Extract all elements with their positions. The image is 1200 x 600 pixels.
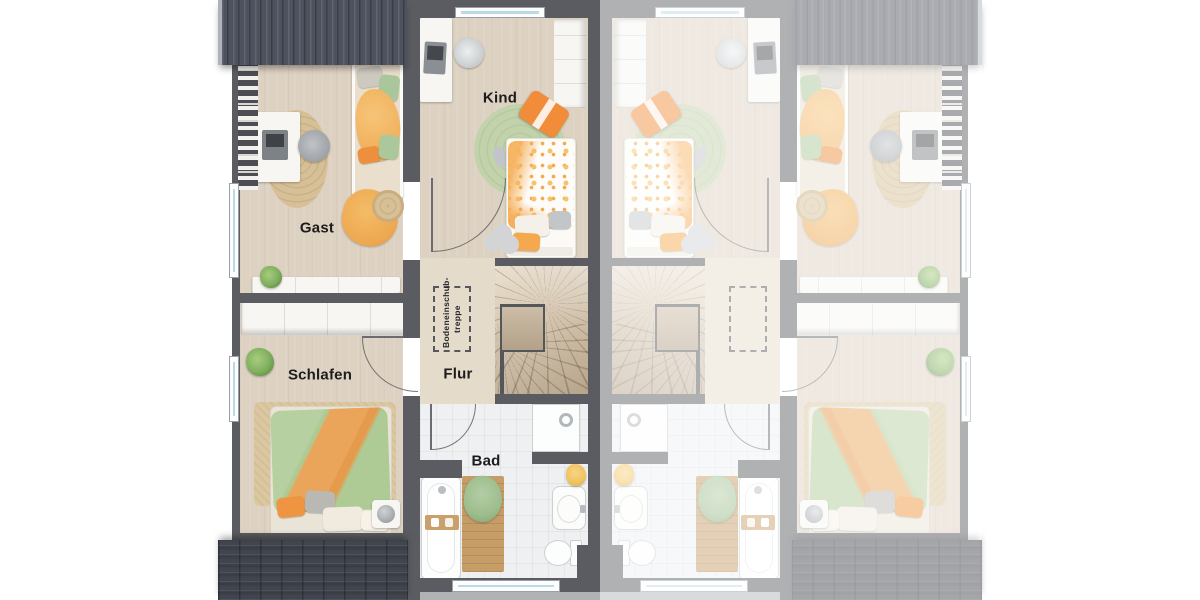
pillow [357, 145, 381, 165]
pillow [378, 134, 400, 159]
faucet-icon [580, 505, 586, 513]
floor-plan: Bodeneinschub-treppe [0, 0, 1200, 600]
office-chair-kind [454, 38, 484, 68]
wall-kind-bottom [495, 258, 588, 266]
basket [372, 190, 404, 222]
party-wall [588, 0, 600, 600]
laptop-screen [427, 46, 444, 61]
bottle [445, 518, 453, 527]
pillow [549, 211, 571, 229]
wardrobe-schlafen [241, 303, 413, 335]
office-chair-gast [298, 130, 330, 162]
window-schlafen [229, 356, 239, 422]
bathtub [421, 476, 461, 580]
staircase [495, 266, 588, 394]
window-bad [452, 580, 560, 592]
window-gast [229, 183, 239, 278]
washbasin [552, 486, 586, 530]
bottle [431, 518, 439, 527]
shower-drain-icon [559, 413, 573, 427]
window-kind [455, 7, 545, 18]
shower-shelf-wall [532, 452, 588, 464]
room-label-gast: Gast [300, 220, 334, 237]
basin-bowl [557, 495, 581, 523]
laptop-kind-icon [423, 41, 447, 74]
wall-stairs-bottom [495, 394, 588, 404]
toilet-bowl [544, 540, 572, 566]
pillow [276, 496, 306, 519]
wall-bad-corner [577, 545, 588, 578]
bookshelf [238, 60, 258, 190]
wall-corridor-middle [403, 260, 420, 338]
stairwell-void [500, 304, 545, 352]
pillow [323, 506, 364, 531]
speaker-cone [377, 505, 395, 523]
shower [532, 404, 580, 452]
bath-caddy [425, 515, 459, 530]
speaker [372, 500, 400, 528]
faucet-icon [438, 486, 446, 494]
cloud-rug [484, 224, 520, 254]
daybed-gast [352, 60, 403, 198]
attic-hatch-label: Bodeneinschub-treppe [441, 290, 463, 348]
plant-schlafen [246, 348, 274, 376]
wardrobe-kind [554, 20, 586, 108]
towel-yellow [566, 464, 586, 486]
cushion-strap [532, 98, 556, 129]
bed-double [270, 406, 392, 552]
laptop-screen [266, 134, 284, 147]
roof-top [218, 0, 407, 65]
plant-sideboard [260, 266, 282, 288]
room-label-bad: Bad [472, 453, 501, 470]
room-label-flur: Flur [443, 366, 472, 383]
unit-right [600, 0, 982, 600]
room-label-kind: Kind [483, 90, 517, 107]
mirror-wash-overlay [600, 0, 982, 600]
eave-strip-bottom [420, 592, 600, 600]
unit-left: Bodeneinschub-treppe [218, 0, 600, 600]
room-label-schlafen: Schlafen [288, 367, 352, 384]
wall-gast-schlafen-divider [238, 293, 420, 303]
laptop-gast-icon [262, 130, 288, 160]
cloud-lobe [500, 235, 519, 254]
roof-bottom [218, 540, 408, 600]
attic-hatch-box: Bodeneinschub-treppe [433, 286, 471, 352]
wall-eave-sliver [408, 540, 420, 600]
bathtub-shelf-wall [420, 460, 462, 478]
